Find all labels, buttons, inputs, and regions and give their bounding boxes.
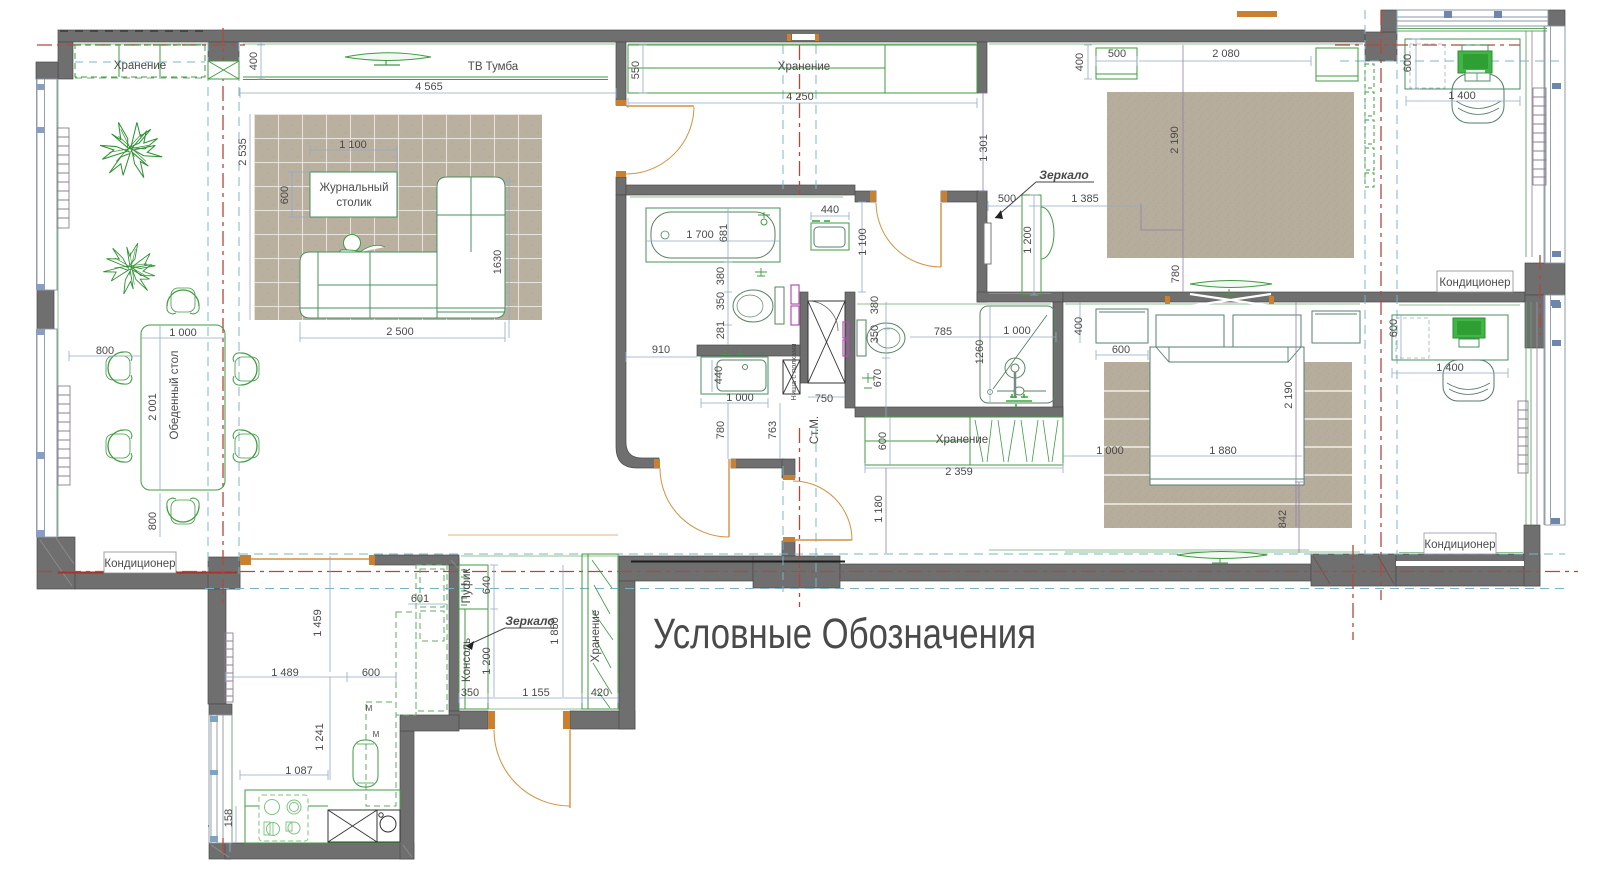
svg-text:780: 780 <box>715 421 727 439</box>
svg-text:1 301: 1 301 <box>978 134 990 162</box>
svg-text:1260: 1260 <box>974 340 986 364</box>
svg-text:1 000: 1 000 <box>169 327 197 339</box>
svg-text:Хранение: Хранение <box>778 61 830 73</box>
svg-text:400: 400 <box>1074 53 1086 71</box>
svg-text:670: 670 <box>872 369 884 387</box>
svg-text:600: 600 <box>362 667 380 679</box>
svg-text:750: 750 <box>815 393 833 405</box>
svg-text:1 000: 1 000 <box>1096 445 1124 457</box>
svg-text:500: 500 <box>998 193 1016 205</box>
svg-text:350: 350 <box>715 292 727 310</box>
svg-text:400: 400 <box>1073 317 1085 335</box>
svg-text:500: 500 <box>1108 48 1126 60</box>
svg-text:440: 440 <box>713 366 725 384</box>
svg-text:2 535: 2 535 <box>237 138 249 166</box>
svg-text:380: 380 <box>715 267 727 285</box>
svg-text:600: 600 <box>1402 54 1414 72</box>
svg-text:2 500: 2 500 <box>386 326 414 338</box>
svg-text:800: 800 <box>96 345 114 357</box>
svg-text:2 190: 2 190 <box>1169 126 1181 154</box>
svg-text:1 459: 1 459 <box>312 609 324 637</box>
svg-text:2 359: 2 359 <box>945 466 973 478</box>
svg-text:842: 842 <box>1277 510 1289 528</box>
svg-text:4 565: 4 565 <box>415 81 443 93</box>
svg-text:1 155: 1 155 <box>522 687 550 699</box>
svg-text:600: 600 <box>279 186 291 204</box>
svg-text:ТВ Тумба: ТВ Тумба <box>468 61 519 73</box>
svg-text:Условные Обозначения: Условные Обозначения <box>653 610 1036 658</box>
svg-text:1 241: 1 241 <box>314 723 326 751</box>
svg-text:158: 158 <box>223 809 235 827</box>
svg-text:681: 681 <box>718 224 730 242</box>
svg-text:2 080: 2 080 <box>1212 48 1240 60</box>
svg-text:М: М <box>373 730 380 739</box>
svg-text:1 100: 1 100 <box>857 228 869 256</box>
svg-text:1630: 1630 <box>492 250 504 274</box>
svg-text:Пуфик: Пуфик <box>461 568 473 604</box>
svg-text:Ниша с полками: Ниша с полками <box>789 343 798 400</box>
svg-text:1 880: 1 880 <box>1209 445 1237 457</box>
svg-text:Кондиционер: Кондиционер <box>1424 539 1495 551</box>
svg-text:350: 350 <box>869 325 881 343</box>
svg-text:440: 440 <box>821 204 839 216</box>
svg-text:Кондиционер: Кондиционер <box>104 558 175 570</box>
svg-text:1 385: 1 385 <box>1071 193 1099 205</box>
svg-text:4 250: 4 250 <box>786 91 814 103</box>
svg-text:Журнальный: Журнальный <box>320 182 389 194</box>
svg-text:Хранение: Хранение <box>114 60 166 72</box>
svg-text:600: 600 <box>877 432 889 450</box>
svg-text:Кондиционер: Кондиционер <box>1439 277 1510 289</box>
svg-text:1 400: 1 400 <box>1448 90 1476 102</box>
svg-text:Хранение: Хранение <box>936 434 988 446</box>
svg-text:1 100: 1 100 <box>339 139 367 151</box>
svg-text:1 000: 1 000 <box>1003 325 1031 337</box>
svg-text:1 700: 1 700 <box>686 229 714 241</box>
svg-text:785: 785 <box>934 326 952 338</box>
svg-text:Хранение: Хранение <box>590 610 602 662</box>
svg-text:380: 380 <box>869 296 881 314</box>
svg-text:550: 550 <box>630 61 642 79</box>
svg-text:1 200: 1 200 <box>1022 226 1034 254</box>
svg-text:400: 400 <box>248 52 260 70</box>
svg-text:Обеденный стол: Обеденный стол <box>169 351 181 440</box>
svg-text:2 190: 2 190 <box>1283 381 1295 409</box>
svg-text:Консоль: Консоль <box>461 638 473 682</box>
svg-text:640: 640 <box>481 576 493 594</box>
svg-text:350: 350 <box>461 687 479 699</box>
svg-text:Зеркало: Зеркало <box>1039 168 1088 182</box>
svg-text:420: 420 <box>591 687 609 699</box>
svg-text:Зеркало: Зеркало <box>505 614 554 628</box>
svg-text:М: М <box>366 704 373 713</box>
svg-text:763: 763 <box>767 421 779 439</box>
svg-text:281: 281 <box>715 321 727 339</box>
svg-text:1 200: 1 200 <box>481 647 493 675</box>
svg-text:1 400: 1 400 <box>1436 362 1464 374</box>
svg-text:800: 800 <box>147 512 159 530</box>
svg-text:1 087: 1 087 <box>285 765 313 777</box>
svg-text:1 489: 1 489 <box>271 667 299 679</box>
svg-text:Ст.М.: Ст.М. <box>809 416 821 444</box>
svg-text:столик: столик <box>336 197 372 209</box>
svg-text:601: 601 <box>411 593 429 605</box>
svg-text:780: 780 <box>1170 265 1182 283</box>
svg-text:1 180: 1 180 <box>873 495 885 523</box>
svg-text:2 001: 2 001 <box>147 393 159 421</box>
svg-text:1 000: 1 000 <box>726 392 754 404</box>
svg-text:910: 910 <box>652 344 670 356</box>
svg-text:600: 600 <box>1112 344 1130 356</box>
svg-text:600: 600 <box>1388 319 1400 337</box>
